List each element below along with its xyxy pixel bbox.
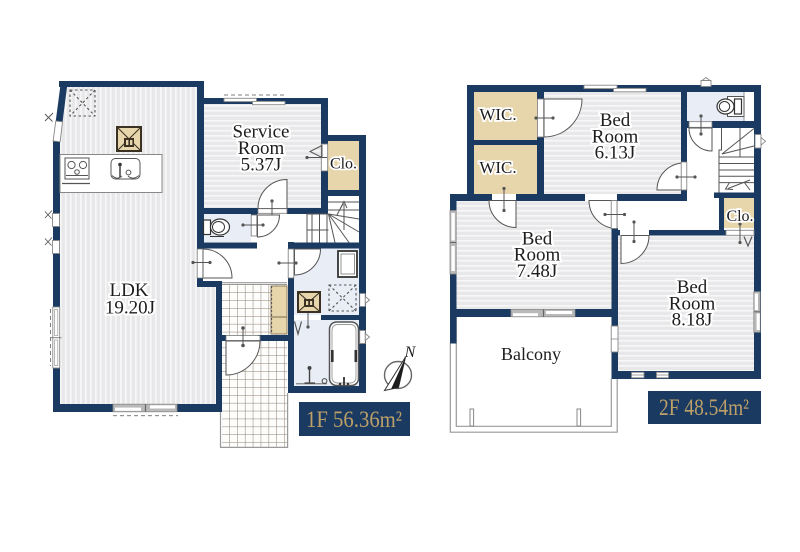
svg-text:WIC.: WIC. (479, 158, 516, 177)
svg-text:WIC.: WIC. (479, 105, 516, 124)
svg-text:2F 48.54m²: 2F 48.54m² (659, 395, 749, 420)
svg-text:Clo.: Clo. (330, 156, 357, 173)
svg-text:5.37J: 5.37J (241, 155, 282, 176)
svg-text:19.20J: 19.20J (105, 298, 155, 319)
svg-text:Balcony: Balcony (501, 344, 561, 364)
svg-text:8.18J: 8.18J (672, 310, 713, 331)
svg-text:1F 56.36m²: 1F 56.36m² (306, 407, 402, 432)
svg-text:N: N (404, 344, 417, 361)
svg-text:Clo.: Clo. (726, 208, 753, 225)
svg-text:7.48J: 7.48J (517, 261, 558, 282)
svg-text:6.13J: 6.13J (595, 143, 636, 164)
